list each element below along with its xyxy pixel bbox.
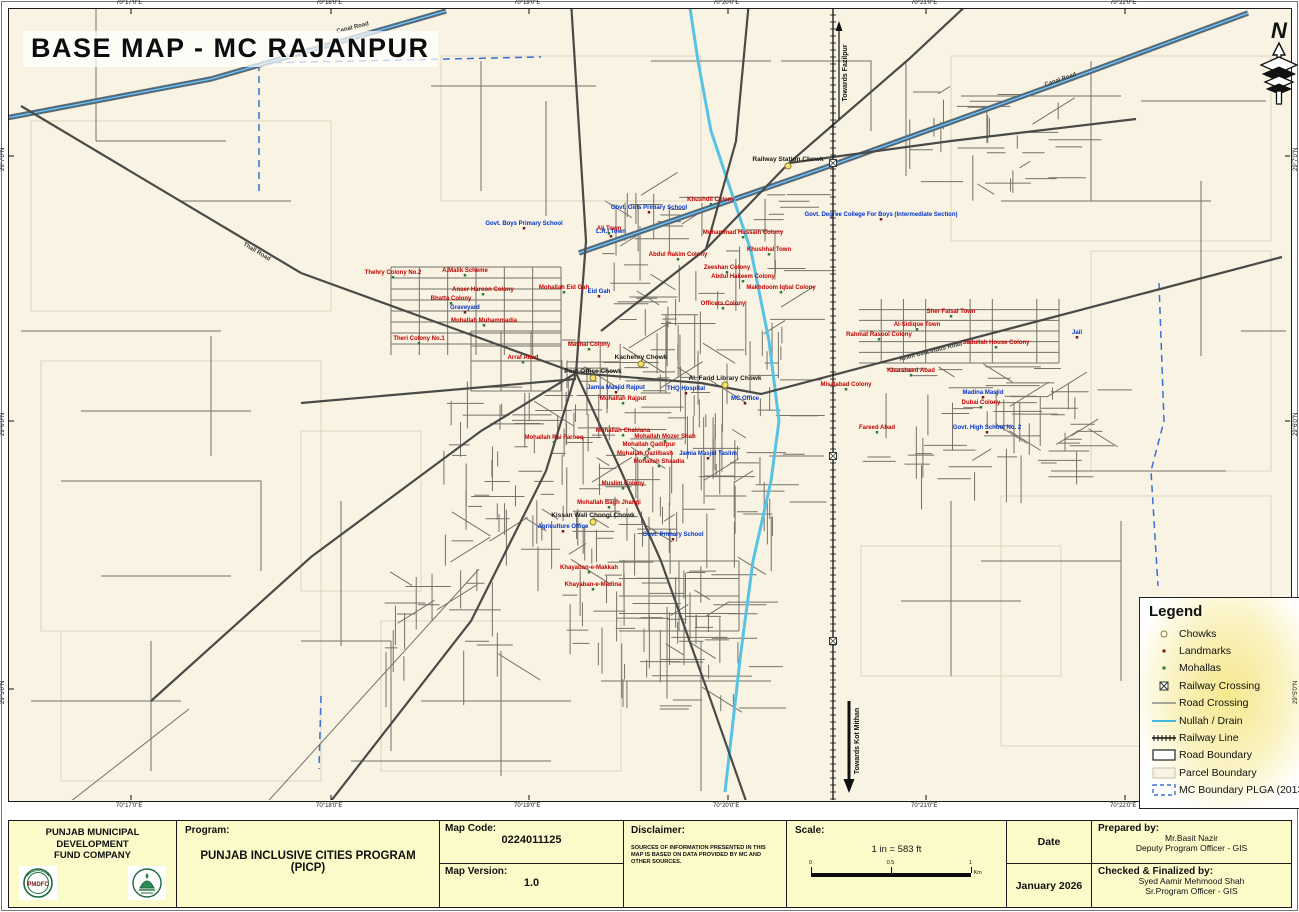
mohalla-marker: [910, 374, 913, 377]
mohalla-marker: [592, 588, 595, 591]
prepared-cell: Prepared by: Mr.Basit Nazir Deputy Progr…: [1092, 821, 1291, 907]
legend-item: Road Boundary: [1149, 747, 1293, 764]
mohalla-marker: [622, 487, 625, 490]
landmark-marker: [744, 402, 747, 405]
road-minor: [597, 458, 610, 466]
map-label: Govt. High School No. 2: [953, 425, 1022, 431]
map-label: Ali Town: [597, 226, 622, 232]
map-label: Mohallah Bagh Jhangi: [577, 500, 641, 506]
parcel-boundary: [861, 546, 1061, 676]
disclaimer-label: Disclaimer:: [631, 825, 779, 836]
toward-kot-mithan-arrow: [844, 779, 855, 793]
road-major: [789, 119, 1136, 163]
road-minor: [61, 481, 261, 571]
parcel-boundary: [61, 631, 321, 781]
map-label: Al-Sidique Town: [894, 322, 941, 328]
date-value-row: January 2026: [1007, 864, 1091, 907]
chowk-marker: [638, 361, 644, 367]
road-minor: [437, 584, 478, 609]
mohalla-marker: [845, 388, 848, 391]
svg-text:PMDFC: PMDFC: [27, 882, 49, 888]
map-label: Govt. Degree College For Boys (Intermedi…: [804, 212, 957, 218]
frame-coordinate-label: 70°18'0"E: [316, 803, 342, 809]
map-label: Thehry Colony No.2: [365, 270, 422, 276]
map-label: Mohallah Qadirpur: [622, 442, 676, 448]
road-minor: [1056, 430, 1079, 444]
legend-item: Chowks: [1149, 625, 1293, 642]
road-minor: [571, 559, 611, 584]
legend-item-label: Landmarks: [1179, 645, 1231, 657]
mohalla-marker: [768, 253, 771, 256]
road-minor: [939, 367, 955, 377]
road-crossing-icon: [1151, 696, 1177, 710]
map-sheet: Towards FazilpurTowards Kot MithanRailwa…: [0, 0, 1299, 912]
legend-item: Nullah / Drain: [1149, 712, 1293, 729]
landmark-marker: [610, 235, 613, 238]
map-label: Mohallah Rajput: [600, 396, 646, 402]
organization-name: PUNJAB MUNICIPAL DEVELOPMENT FUND COMPAN…: [9, 827, 176, 862]
road-minor: [666, 644, 684, 656]
road-minor: [938, 86, 950, 93]
mohalla-marker: [876, 431, 879, 434]
mc-boundary-line: [1151, 283, 1164, 586]
map-label: Theri Colony No.1: [393, 336, 445, 342]
map-label: Jail: [1072, 330, 1082, 336]
parcel-boundary-icon: [1151, 766, 1177, 780]
mohalla-marker: [742, 236, 745, 239]
map-label: Govt. Primary School: [642, 532, 703, 538]
scale-bar-tick: [971, 867, 972, 873]
frame-coordinate-label: 70°22'0"E: [1110, 803, 1136, 809]
chowk-marker: [590, 375, 596, 381]
mohalla-marker: [622, 402, 625, 405]
scale-bar-line: [811, 873, 971, 877]
frame-coordinate-label: 29°7'0"N: [0, 148, 6, 171]
road-minor: [704, 459, 739, 481]
frame-coordinate-label: 70°22'0"E: [1110, 0, 1136, 6]
landmark-marker: [1076, 336, 1079, 339]
map-label: Khayaban-e-Madina: [565, 582, 622, 588]
legend-item-label: Railway Crossing: [1179, 680, 1260, 692]
map-label: Khayaban-e-Makkah: [560, 565, 618, 571]
date-label-row: Date: [1007, 821, 1091, 864]
legend-item: Railway Line: [1149, 729, 1293, 746]
road-minor: [694, 590, 710, 600]
map-label: Khursheed Abad: [887, 368, 935, 374]
mohalla-marker: [622, 434, 625, 437]
frame-coordinate-label: 70°18'0"E: [316, 0, 342, 6]
map-label: Zeeshan Colony: [704, 265, 751, 271]
legend-item-label: Nullah / Drain: [1179, 715, 1243, 727]
organization-cell: PUNJAB MUNICIPAL DEVELOPMENT FUND COMPAN…: [9, 821, 177, 907]
map-label: Kissan Wali Chongi Chowk: [551, 512, 635, 519]
legend-item: Road Crossing: [1149, 695, 1293, 712]
legend-item: Mohallas: [1149, 660, 1293, 677]
map-graphics: Towards FazilpurTowards Kot MithanRailwa…: [9, 9, 1290, 800]
road-minor: [1047, 372, 1087, 397]
road-minor: [1032, 98, 1074, 124]
map-label: Jamia Masjid Taslim: [679, 451, 737, 457]
landmark-marker: [982, 396, 985, 399]
map-code-value: 0224011125: [445, 834, 618, 846]
legend-item-label: Mohallas: [1179, 662, 1221, 674]
scale-bar-number: 0.5: [887, 860, 895, 866]
legend-item: Parcel Boundary: [1149, 764, 1293, 781]
map-label: Khushhal Town: [747, 247, 792, 253]
map-label: Agriculture Office: [538, 524, 589, 530]
landmark-marker: [685, 392, 688, 395]
road-minor: [1071, 419, 1098, 436]
landmark-marker: [562, 530, 565, 533]
map-label: Al. Farid Library Chowk: [689, 375, 762, 382]
map-label: Mohallah Qazilbash: [617, 451, 673, 457]
scale-bar: Km 00.51: [811, 864, 983, 880]
scale-bar-unit: Km: [974, 870, 982, 876]
map-label: Govt. Boys Primary School: [485, 221, 563, 227]
road-minor: [592, 457, 632, 482]
landmark-marker: [523, 227, 526, 230]
parcel-boundary: [31, 121, 331, 311]
road-minor: [641, 172, 677, 195]
map-label: Railway Station Chowk: [752, 156, 824, 163]
map-label: Sher Faisal Town: [927, 309, 976, 315]
scale-bar-number: 0: [809, 860, 812, 866]
road-minor: [1019, 161, 1030, 168]
map-label: Mohallah Eid Gah: [539, 285, 590, 291]
scale-label: Scale:: [795, 825, 998, 836]
legend-item-label: MC Boundary PLGA (2013): [1179, 784, 1299, 796]
legend-item-label: Parcel Boundary: [1179, 767, 1257, 779]
legend-item-label: Chowks: [1179, 628, 1216, 640]
parcel-boundary: [41, 361, 321, 631]
logo-row: PMDFC: [9, 862, 176, 900]
map-label: Misalabad Colony: [820, 382, 872, 388]
mohalla-marker: [392, 276, 395, 279]
map-code-row: Map Code: 0224011125: [440, 821, 623, 864]
map-label: Graveyard: [450, 305, 480, 311]
map-code-label: Map Code:: [445, 823, 618, 834]
map-title: BASE MAP - MC RAJANPUR: [23, 31, 438, 67]
railway-annotation: Towards Kot Mithan: [854, 708, 861, 774]
road-major: [601, 9, 971, 331]
map-label: Dubai Colony: [962, 400, 1001, 406]
mohalla-marker: [608, 506, 611, 509]
map-label: Kachehry Chowk: [615, 354, 668, 361]
map-label: Madina Masjid: [962, 390, 1003, 396]
map-label: Bhatta Colony: [431, 296, 472, 302]
road-minor: [732, 429, 746, 438]
road-boundary-icon: [1151, 748, 1177, 762]
map-label: Eid Gah: [588, 289, 611, 295]
chowk-marker: [785, 163, 791, 169]
landmark-marker: [986, 431, 989, 434]
map-label: Govt. Girls Primary School: [611, 205, 688, 211]
frame-coordinate-label: 70°21'0"E: [911, 803, 937, 809]
mohalla-marker: [553, 441, 556, 444]
north-label: N: [1254, 21, 1299, 41]
pmdfc-logo: PMDFC: [19, 866, 57, 900]
mohalla-marker: [522, 361, 525, 364]
road-minor: [977, 184, 994, 194]
title-block: PUNJAB MUNICIPAL DEVELOPMENT FUND COMPAN…: [8, 820, 1292, 908]
parcel-boundary: [301, 431, 421, 591]
scale-value: 1 in = 583 ft: [795, 844, 998, 855]
mohalla-marker: [950, 315, 953, 318]
prepared-by-row: Prepared by: Mr.Basit Nazir Deputy Progr…: [1092, 821, 1291, 864]
map-label: Mohallah Muhammadia: [451, 318, 518, 324]
map-version-value: 1.0: [445, 877, 618, 889]
map-label: Abdul Hakim Colony: [649, 252, 708, 258]
date-value: January 2026: [1016, 880, 1083, 892]
toward-fazilpur-arrow: [836, 21, 843, 31]
frame-coordinate-label: 70°17'0"E: [116, 803, 142, 809]
legend-item-label: Road Boundary: [1179, 749, 1252, 761]
checked-by-row: Checked & Finalized by: Syed Aamir Mehmo…: [1092, 864, 1291, 907]
mohalla-marker: [608, 232, 611, 235]
map-label: MC Office: [731, 396, 760, 402]
mohalla-marker: [483, 324, 486, 327]
chowk-icon: [1151, 627, 1177, 641]
legend-items: ChowksLandmarksMohallasRailway CrossingR…: [1149, 625, 1293, 799]
map-label: Rahmat Rasool Colony: [846, 332, 912, 338]
legend-item-label: Railway Line: [1179, 732, 1239, 744]
checked-by-title: Sr.Program Officer - GIS: [1098, 887, 1285, 897]
date-label: Date: [1038, 836, 1061, 848]
mohalla-marker: [482, 293, 485, 296]
map-label: Officers Colony: [701, 301, 746, 307]
program-label: Program:: [185, 825, 431, 836]
mc-boundary-icon: [1151, 783, 1177, 797]
road-minor: [781, 61, 871, 131]
road-minor: [534, 401, 573, 426]
landmark-marker: [880, 218, 883, 221]
railway-line-icon: [1151, 731, 1177, 745]
map-canvas: Towards FazilpurTowards Kot MithanRailwa…: [8, 8, 1292, 802]
road-minor: [703, 343, 735, 363]
date-cell: Date January 2026: [1007, 821, 1092, 907]
mohalla-marker: [464, 274, 467, 277]
disclaimer-cell: Disclaimer: SOURCES OF INFORMATION PRESE…: [624, 821, 787, 907]
road-minor: [390, 572, 412, 586]
map-label: Khushdil Colony: [687, 197, 735, 203]
north-arrow: N: [1254, 21, 1299, 113]
legend-item: Landmarks: [1149, 642, 1293, 659]
parcel-boundary: [441, 56, 701, 201]
mohalla-marker: [780, 291, 783, 294]
program-value: PUNJAB INCLUSIVE CITIES PROGRAM (PICP): [185, 850, 431, 874]
road-minor: [452, 512, 490, 536]
map-label: THQ Hospital: [667, 386, 705, 392]
legend-item: Railway Crossing: [1149, 677, 1293, 694]
mc-boundary-line: [259, 57, 541, 191]
scale-bar-number: 1: [969, 860, 972, 866]
frame-coordinate-label: 29°5'0"N: [0, 681, 6, 704]
map-label: A.Malik Scheme: [442, 268, 488, 274]
mohalla-marker: [710, 203, 713, 206]
legend-panel: Legend ChowksLandmarksMohallasRailway Cr…: [1139, 597, 1299, 809]
landmark-marker: [615, 391, 618, 394]
frame-coordinate-label: 29°5'0"N: [1293, 681, 1299, 704]
landmark-icon: [1151, 644, 1177, 658]
frame-coordinate-label: 70°21'0"E: [911, 0, 937, 6]
scale-bar-tick: [811, 867, 812, 873]
mohalla-marker: [418, 342, 421, 345]
map-label: Mohallah Shaadia: [634, 459, 685, 465]
landmark-marker: [598, 295, 601, 298]
map-label: Jamia Masjid Rajput: [587, 385, 645, 391]
map-label: Sadullah House Colony: [962, 340, 1030, 346]
road-minor: [498, 654, 540, 681]
map-label: Anser Haroon Colony: [452, 287, 514, 293]
mohalla-marker: [677, 258, 680, 261]
railway-crossing-icon: [1151, 679, 1177, 693]
frame-coordinate-label: 29°6'0"N: [0, 413, 6, 436]
map-version-label: Map Version:: [445, 866, 618, 877]
railway-annotation: Towards Fazilpur: [842, 44, 849, 101]
frame-coordinate-label: 70°19'0"E: [514, 0, 540, 6]
mohalla-marker: [980, 406, 983, 409]
map-label: Abdul Hakeem Colony: [711, 274, 775, 280]
mohalla-marker: [450, 302, 453, 305]
map-version-row: Map Version: 1.0: [440, 864, 623, 907]
map-label: Mohallah Mozer Shah: [634, 434, 696, 440]
road-major: [571, 9, 586, 373]
north-arrow-icon: [1256, 41, 1299, 107]
program-cell: Program: PUNJAB INCLUSIVE CITIES PROGRAM…: [177, 821, 440, 907]
chowk-marker: [590, 519, 596, 525]
map-label: Muhammad Hussain Colony: [703, 230, 784, 236]
road-minor: [301, 641, 391, 751]
frame-coordinate-label: 29°6'0"N: [1293, 413, 1299, 436]
road-minor: [706, 602, 730, 617]
mohalla-marker: [563, 291, 566, 294]
frame-coordinate-label: 70°19'0"E: [514, 803, 540, 809]
road-minor: [61, 709, 189, 800]
mohalla-marker: [742, 280, 745, 283]
map-label: Makhdoom Iqbal Colony: [746, 285, 816, 291]
scale-bar-tick: [891, 867, 892, 873]
map-label: Mashal Colony: [568, 342, 611, 348]
map-label: Fareed Abad: [859, 425, 895, 431]
mohalla-marker: [588, 571, 591, 574]
mohalla-marker: [878, 338, 881, 341]
mohalla-marker: [722, 307, 725, 310]
frame-coordinate-label: 70°20'0"E: [713, 803, 739, 809]
map-label: Arraf Abad: [508, 355, 539, 361]
map-label: Muslim Colony: [602, 481, 645, 487]
legend-title: Legend: [1149, 603, 1293, 620]
landmark-marker: [672, 538, 675, 541]
landmark-marker: [707, 457, 710, 460]
mohalla-marker: [588, 348, 591, 351]
frame-coordinate-label: 70°17'0"E: [116, 0, 142, 6]
legend-item-label: Road Crossing: [1179, 697, 1248, 709]
mohalla-icon: [1151, 661, 1177, 675]
map-label: Mohallah Rai Farooq: [524, 435, 583, 441]
disclaimer-text: SOURCES OF INFORMATION PRESENTED IN THIS…: [631, 845, 779, 866]
map-code-cell: Map Code: 0224011125 Map Version: 1.0: [440, 821, 624, 907]
nullah-icon: [1151, 714, 1177, 728]
map-label: Post Office Chowk: [564, 368, 622, 375]
landmark-marker: [648, 211, 651, 214]
road-minor: [629, 322, 671, 348]
mohalla-marker: [995, 346, 998, 349]
frame-coordinate-label: 70°20'0"E: [713, 0, 739, 6]
mohalla-marker: [658, 465, 661, 468]
road-major: [706, 9, 749, 249]
legend-item: MC Boundary PLGA (2013): [1149, 782, 1293, 799]
chowk-marker: [722, 382, 728, 388]
mohalla-marker: [916, 328, 919, 331]
prepared-by-title: Deputy Program Officer - GIS: [1098, 844, 1285, 854]
punjab-government-logo: [128, 866, 166, 900]
landmark-marker: [464, 311, 467, 314]
frame-coordinate-label: 29°7'0"N: [1293, 148, 1299, 171]
scale-cell: Scale: 1 in = 583 ft Km 00.51: [787, 821, 1007, 907]
